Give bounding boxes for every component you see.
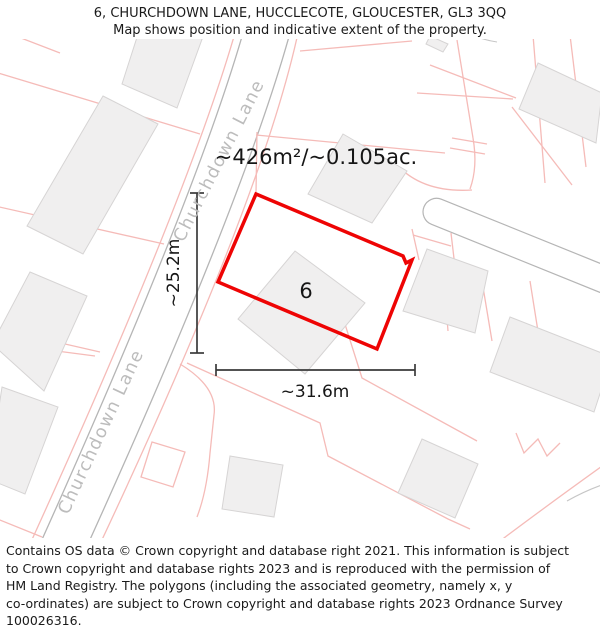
building (403, 249, 488, 333)
width-measure (216, 364, 415, 376)
building-on-plot (238, 251, 365, 374)
road-corner-curve-bottom (567, 481, 600, 501)
attribution-line: co-ordinates) are subject to Crown copyr… (6, 595, 594, 613)
building (0, 272, 87, 391)
outbuilding (141, 442, 185, 487)
map-svg: Churchdown Lane Churchdown Lane ~426m²/~… (0, 39, 600, 538)
map-container: Churchdown Lane Churchdown Lane ~426m²/~… (0, 39, 600, 538)
height-measure-label: ~25.2m (164, 239, 184, 308)
attribution-line: to Crown copyright and database rights 2… (6, 560, 594, 578)
width-measure-label: ~31.6m (281, 382, 350, 402)
map-description: Map shows position and indicative extent… (0, 22, 600, 39)
footer-attribution: Contains OS data © Crown copyright and d… (0, 538, 600, 630)
building (222, 456, 283, 517)
building (122, 39, 205, 108)
area-label: ~426m²/~0.105ac. (215, 145, 417, 169)
building (490, 317, 600, 412)
header: 6, CHURCHDOWN LANE, HUCCLECOTE, GLOUCEST… (0, 0, 600, 39)
building (0, 387, 58, 494)
building (27, 96, 158, 254)
plot-number-label: 6 (299, 279, 312, 303)
attribution-line: HM Land Registry. The polygons (includin… (6, 577, 594, 595)
attribution-line: Contains OS data © Crown copyright and d… (6, 542, 594, 560)
building (426, 39, 448, 52)
land-registry-map-page: 6, CHURCHDOWN LANE, HUCCLECOTE, GLOUCEST… (0, 0, 600, 630)
attribution-line: 100026316. (6, 612, 594, 630)
road-corner-curve-top (470, 39, 497, 42)
property-address: 6, CHURCHDOWN LANE, HUCCLECOTE, GLOUCEST… (0, 5, 600, 22)
building (398, 439, 478, 518)
